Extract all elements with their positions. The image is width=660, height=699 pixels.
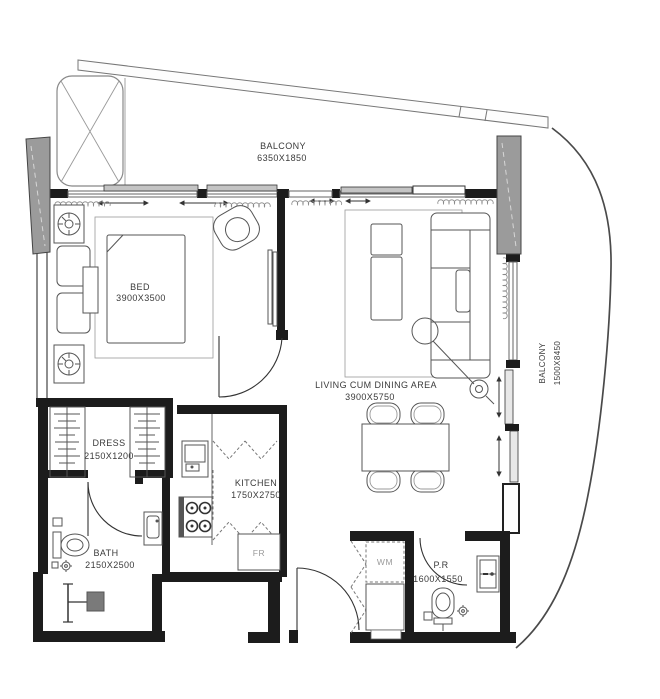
floor-plan-drawing: FR	[0, 0, 660, 699]
dress-label: DRESS	[92, 438, 125, 448]
sofa	[431, 213, 490, 378]
pr-sink	[477, 556, 499, 592]
bath-vanity	[144, 512, 162, 545]
powder-room-label: P.R	[433, 560, 448, 570]
bath-label: BATH	[94, 548, 119, 558]
kitchen-dims: 1750X2750	[231, 490, 281, 500]
powder-room-dims: 1600X1550	[413, 574, 463, 584]
fixed-window	[413, 186, 465, 194]
column-right	[497, 136, 521, 254]
balcony-top-label: BALCONY	[260, 141, 306, 151]
balcony-top-dims: 6350X1850	[257, 153, 307, 163]
dining-table	[362, 424, 449, 471]
bedroom-sliding-partition	[268, 250, 277, 326]
bedroom-dims: 3900X3500	[116, 293, 166, 303]
bath-dims: 2150X2500	[85, 560, 135, 570]
sliding-panel-east	[505, 370, 513, 424]
balcony-right-dims: 1500X8450	[553, 341, 562, 386]
bedroom-label: BED	[130, 282, 150, 292]
wall-pier	[503, 484, 519, 533]
sliding-panel-east	[510, 431, 518, 482]
floor-plan-page: FR	[0, 0, 660, 699]
fridge-label: FR	[253, 548, 266, 558]
balcony-right-label: BALCONY	[538, 342, 547, 383]
tv-unit	[371, 224, 402, 255]
living-dims: 3900X5750	[345, 392, 395, 402]
living-label: LIVING CUM DINING AREA	[315, 380, 437, 390]
bed-runner	[83, 267, 98, 313]
threshold	[371, 630, 401, 639]
washing-machine-label: WM	[377, 557, 393, 567]
chaise	[371, 257, 402, 320]
shaft-x-box	[57, 76, 123, 186]
kitchen-label: KITCHEN	[235, 478, 277, 488]
dress-dims: 2150X1200	[84, 451, 134, 461]
